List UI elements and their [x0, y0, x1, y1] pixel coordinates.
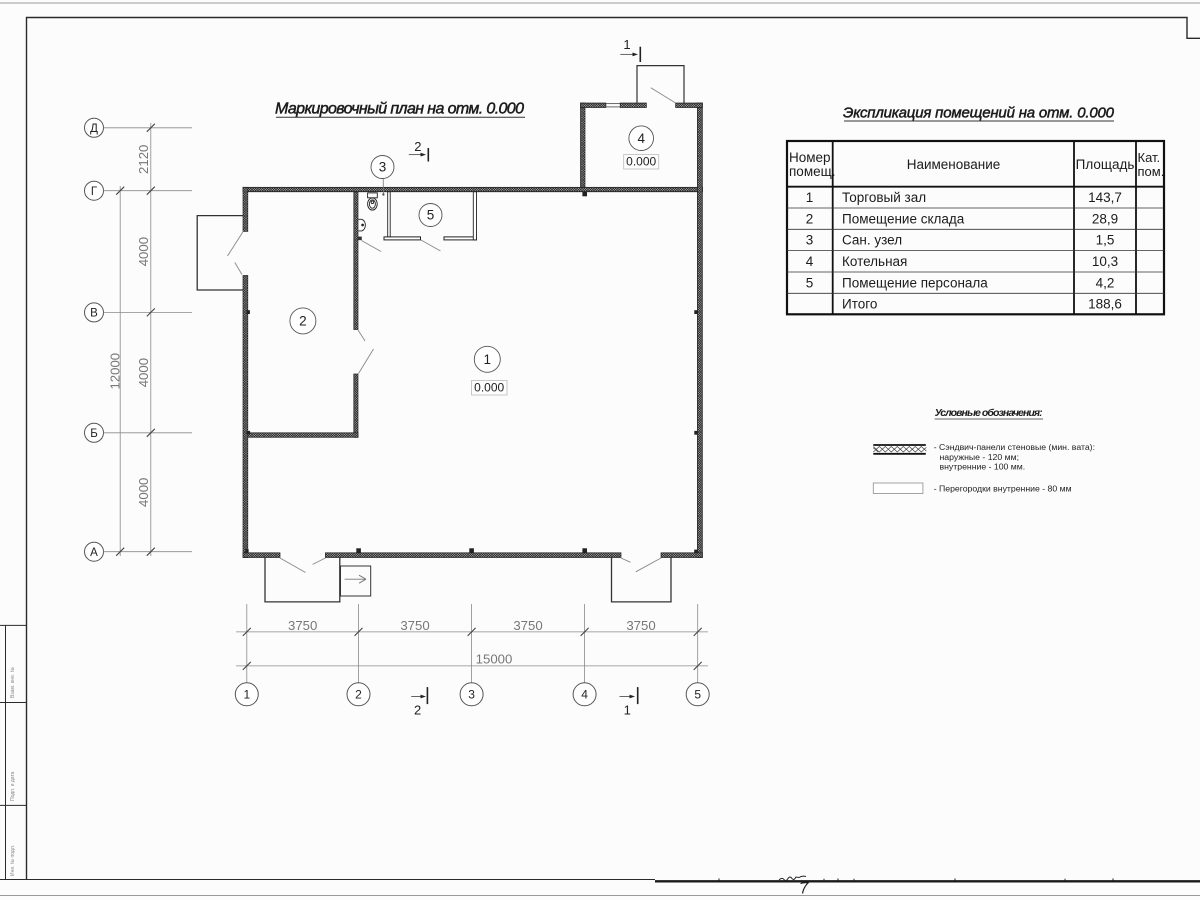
svg-text:2120: 2120: [136, 145, 151, 174]
svg-text:Г: Г: [91, 186, 98, 198]
svg-text:3: 3: [379, 160, 387, 175]
svg-text:Помещение персонала: Помещение персонала: [842, 275, 988, 290]
svg-text:Маркировочный план на отм. 0.0: Маркировочный план на отм. 0.000: [275, 101, 524, 118]
svg-text:4000: 4000: [136, 478, 151, 507]
svg-text:4000: 4000: [136, 358, 151, 387]
svg-text:Наименование: Наименование: [907, 157, 1001, 172]
svg-text:5: 5: [694, 688, 701, 702]
svg-text:2: 2: [414, 139, 421, 154]
svg-text:4: 4: [581, 688, 588, 702]
svg-text:Помещение склада: Помещение склада: [842, 211, 965, 226]
svg-text:3750: 3750: [626, 618, 655, 633]
svg-text:15000: 15000: [476, 651, 513, 666]
svg-text:Инв. № подл.: Инв. № подл.: [10, 845, 16, 876]
svg-text:Б: Б: [90, 428, 98, 440]
svg-text:12000: 12000: [108, 353, 123, 390]
svg-text:пом.: пом.: [1138, 164, 1165, 179]
svg-text:1,5: 1,5: [1096, 233, 1115, 248]
svg-text:5: 5: [427, 208, 435, 223]
svg-text:1: 1: [484, 352, 492, 367]
svg-text:1: 1: [623, 37, 630, 52]
svg-text:2: 2: [414, 703, 421, 718]
svg-text:4,2: 4,2: [1096, 275, 1115, 290]
svg-text:Взам. инв. №: Взам. инв. №: [10, 667, 16, 698]
svg-text:Площадь: Площадь: [1076, 157, 1135, 172]
svg-text:Условные обозначения:: Условные обозначения:: [935, 407, 1043, 419]
svg-text:0.000: 0.000: [626, 155, 656, 169]
svg-text:Кат.: Кат.: [1138, 150, 1161, 165]
svg-text:помещ.: помещ.: [789, 164, 835, 179]
svg-text:4000: 4000: [136, 237, 151, 266]
svg-text:4: 4: [637, 131, 645, 146]
svg-text:Экспликация помещений на отм.: Экспликация помещений на отм. 0.000: [843, 105, 1115, 122]
svg-text:Котельная: Котельная: [842, 254, 907, 269]
svg-text:внутренние - 100 мм.: внутренние - 100 мм.: [940, 462, 1026, 472]
svg-text:Итого: Итого: [842, 297, 877, 312]
svg-text:4: 4: [806, 254, 814, 269]
svg-text:0.000: 0.000: [474, 381, 504, 395]
svg-text:наружные - 120 мм;: наружные - 120 мм;: [940, 452, 1019, 462]
svg-text:Номер: Номер: [789, 150, 831, 165]
svg-text:Подп. и дата: Подп. и дата: [10, 771, 16, 801]
svg-text:3750: 3750: [513, 618, 542, 633]
svg-text:5: 5: [806, 275, 814, 290]
svg-text:1: 1: [243, 688, 250, 702]
svg-text:Д: Д: [90, 123, 98, 135]
svg-text:1: 1: [624, 703, 631, 718]
svg-text:10,3: 10,3: [1092, 254, 1118, 269]
svg-text:Сан. узел: Сан. узел: [842, 233, 902, 248]
svg-text:3750: 3750: [400, 618, 429, 633]
svg-text:2: 2: [355, 688, 362, 702]
svg-text:3: 3: [468, 688, 475, 702]
svg-text:2: 2: [806, 211, 814, 226]
svg-text:В: В: [90, 308, 98, 320]
svg-text:- Сэндвич-панели стеновые (мин: - Сэндвич-панели стеновые (мин. вата):: [934, 442, 1095, 452]
svg-text:2: 2: [299, 314, 307, 329]
svg-text:3: 3: [806, 233, 814, 248]
svg-text:28,9: 28,9: [1092, 211, 1118, 226]
svg-text:3750: 3750: [288, 618, 317, 633]
svg-text:188,6: 188,6: [1088, 297, 1122, 312]
svg-text:143,7: 143,7: [1088, 190, 1122, 205]
svg-text:А: А: [90, 547, 98, 559]
svg-text:- Перегородки внутренние - 80: - Перегородки внутренние - 80 мм: [934, 484, 1072, 494]
svg-text:Торговый зал: Торговый зал: [842, 190, 926, 205]
svg-text:1: 1: [806, 190, 814, 205]
